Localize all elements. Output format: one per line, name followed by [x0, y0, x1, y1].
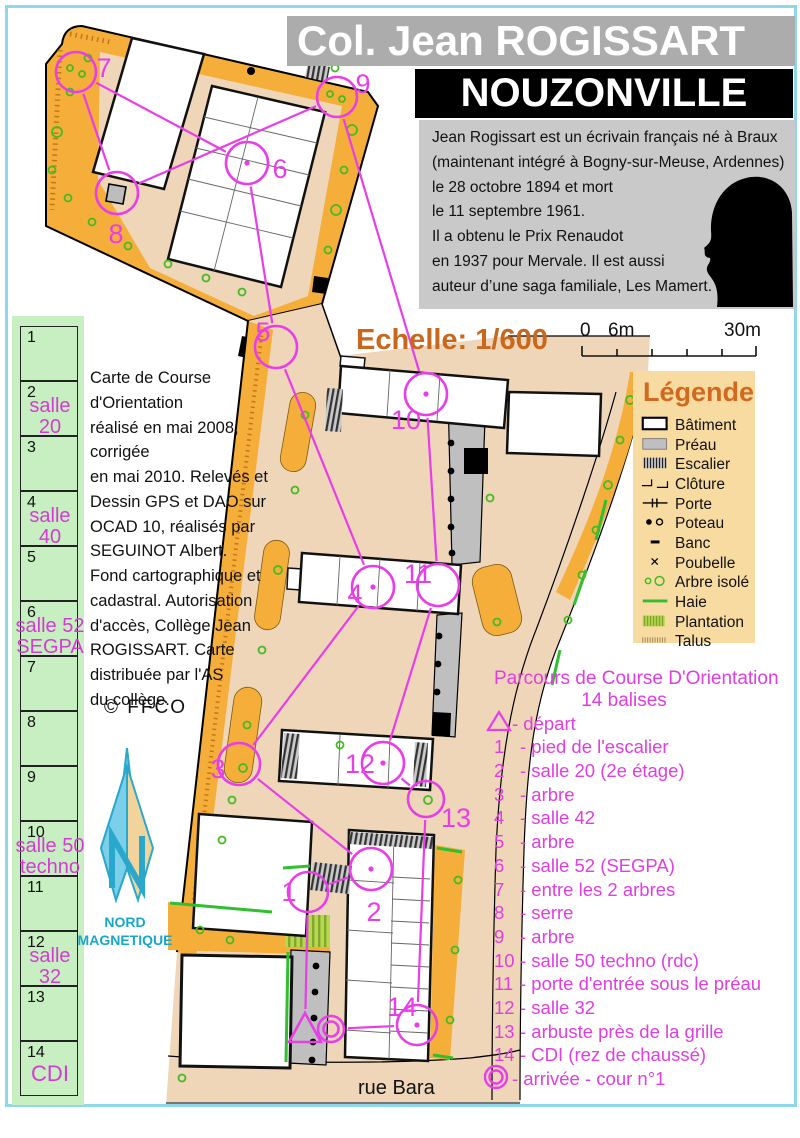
- scale-bar: 0 6m 30m: [578, 320, 762, 364]
- course-item-label: - salle 20 (2e étage): [520, 760, 685, 782]
- map-credits: Carte de Course d'Orientation réalisé en…: [90, 366, 300, 713]
- legend-item-label: Bâtiment: [675, 417, 736, 435]
- preau-icon: [641, 435, 675, 457]
- control-number-label: 5: [255, 317, 270, 347]
- legend-item: Poubelle: [641, 554, 755, 574]
- cell-number: 1: [27, 329, 36, 347]
- escalier-icon: [641, 454, 675, 476]
- haie-icon: [641, 592, 675, 614]
- control-number-label: 1: [281, 877, 296, 907]
- control-card-cell-5: 5: [20, 546, 78, 601]
- svg-text:6m: 6m: [608, 320, 634, 341]
- cell-room-label: salle 20: [7, 396, 93, 438]
- talus-icon: [641, 631, 675, 653]
- compass-north-arrow: [86, 748, 168, 910]
- legend-item-label: Plantation: [675, 614, 744, 632]
- legend-item-label: Escalier: [675, 456, 730, 474]
- porte-icon: [641, 494, 675, 516]
- start-triangle-icon: [486, 710, 512, 737]
- control-number-label: 3: [210, 754, 225, 784]
- cloture-icon: [641, 474, 675, 496]
- course-item-number: 11: [494, 973, 520, 995]
- control-card-cell-14: 14CDI: [20, 1041, 78, 1096]
- cell-room-label: salle 52 SEGPA: [7, 616, 93, 658]
- control-card-cell-4: 4salle 40: [20, 491, 78, 546]
- legend-item: Clôture: [641, 475, 755, 495]
- course-item: 2- salle 20 (2e étage): [494, 759, 796, 783]
- course-item: 13- arbuste près de la grille: [494, 1020, 796, 1044]
- plantation-icon: [641, 612, 675, 634]
- legend-item-label: Talus: [675, 633, 711, 651]
- banc-icon: [641, 533, 675, 555]
- legend-item: Haie: [641, 593, 755, 613]
- city-banner: NOUZONVILLE: [415, 69, 793, 118]
- course-item-label: - arbre: [520, 831, 575, 853]
- control-card-cell-13: 13: [20, 986, 78, 1041]
- course-item-label: - porte d'entrée sous le préau: [520, 973, 761, 995]
- serre-greenhouse: [106, 184, 126, 204]
- course-item-number: 6: [494, 855, 520, 877]
- course-item: 3- arbre: [494, 783, 796, 807]
- course-item: 6- salle 52 (SEGPA): [494, 854, 796, 878]
- course-item-label: - pied de l'escalier: [520, 736, 669, 758]
- cell-room-label: salle 40: [7, 506, 93, 548]
- course-item-number: 5: [494, 831, 520, 853]
- finish-circles-icon: [482, 1063, 512, 1096]
- course-item: 1- pied de l'escalier: [494, 736, 796, 760]
- cell-room-label: CDI: [7, 1062, 93, 1085]
- cell-number: 9: [27, 769, 36, 787]
- cell-number: 8: [27, 714, 36, 732]
- control-card-cell-1: 1: [20, 326, 78, 381]
- control-card-cell-3: 3: [20, 436, 78, 491]
- school-title-banner: Col. Jean ROGISSART: [287, 16, 795, 66]
- legend-item: Banc: [641, 534, 755, 554]
- course-item-label: - arrivée - cour n°1: [512, 1068, 665, 1090]
- legend-item: Escalier: [641, 455, 755, 475]
- course-item-label: - salle 42: [520, 807, 595, 829]
- legend-panel: Légende BâtimentPréauEscalierClôturePort…: [633, 371, 755, 643]
- course-title: Parcours de Course D'Orientation: [494, 668, 796, 690]
- poubelle-icon: [641, 553, 675, 575]
- course-item-label: - départ: [512, 713, 576, 735]
- course-item-number: 1: [494, 736, 520, 758]
- legend-title: Légende: [643, 377, 755, 408]
- course-item-label: - arbre: [520, 784, 575, 806]
- compass-label: NORD MAGNETIQUE: [62, 913, 188, 949]
- course-subtitle: 14 balises: [494, 690, 754, 712]
- control-card-cell-8: 8: [20, 711, 78, 766]
- course-item-label: - salle 52 (SEGPA): [520, 855, 675, 877]
- course-item: 4- salle 42: [494, 807, 796, 831]
- control-number-label: 7: [96, 53, 111, 83]
- street-label: rue Bara: [358, 1077, 436, 1099]
- course-item-number: 7: [494, 879, 520, 901]
- course-item: 5- arbre: [494, 830, 796, 854]
- course-item-label: - CDI (rez de chaussé): [520, 1044, 706, 1066]
- ffco-copyright: © FFCO: [104, 697, 187, 719]
- legend-item-label: Préau: [675, 437, 716, 455]
- course-item-number: 2: [494, 760, 520, 782]
- control-card-cell-2: 2salle 20: [20, 381, 78, 436]
- batiment-icon: [641, 415, 675, 437]
- legend-item-label: Poubelle: [675, 555, 735, 573]
- legend-item-label: Banc: [675, 535, 710, 553]
- control-card: 12salle 2034salle 4056salle 52 SEGPA7891…: [12, 316, 84, 1105]
- course-item-number: 10: [494, 950, 520, 972]
- control-card-cell-6: 6salle 52 SEGPA: [20, 601, 78, 656]
- course-item-number: 4: [494, 807, 520, 829]
- course-item: - départ: [494, 712, 796, 736]
- biography-box: Jean Rogissart est un écrivain français …: [419, 120, 795, 309]
- legend-item: Arbre isolé: [641, 574, 755, 594]
- course-item-number: 12: [494, 997, 520, 1019]
- control-card-cell-10: 10salle 50 techno: [20, 821, 78, 876]
- cell-number: 11: [27, 879, 44, 897]
- control-number-label: 4: [347, 579, 362, 609]
- portrait-silhouette: [681, 171, 793, 307]
- legend-item: Bâtiment: [641, 416, 755, 436]
- course-item: 12- salle 32: [494, 996, 796, 1020]
- control-card-cell-7: 7: [20, 656, 78, 711]
- control-number-label: 12: [345, 749, 375, 779]
- course-item: 11- porte d'entrée sous le préau: [494, 972, 796, 996]
- control-number-label: 14: [387, 992, 417, 1022]
- control-number-label: 10: [391, 405, 421, 435]
- control-card-cell-9: 9: [20, 766, 78, 821]
- legend-item: Poteau: [641, 514, 755, 534]
- course-item-label: - arbuste près de la grille: [520, 1021, 724, 1043]
- cell-number: 13: [27, 989, 45, 1007]
- course-item: - arrivée - cour n°1: [494, 1067, 796, 1091]
- cell-number: 14: [27, 1044, 45, 1062]
- course-item-number: 13: [494, 1021, 520, 1043]
- legend-item: Préau: [641, 436, 755, 456]
- cell-number: 7: [27, 659, 36, 677]
- cell-room-label: salle 50 techno: [7, 836, 93, 878]
- course-item-number: 3: [494, 784, 520, 806]
- legend-item-label: Poteau: [675, 515, 724, 533]
- course-item: 7- entre les 2 arbres: [494, 878, 796, 902]
- cell-number: 3: [27, 439, 36, 457]
- course-item-label: - arbre: [520, 926, 575, 948]
- legend-item: Plantation: [641, 613, 755, 633]
- cell-room-label: salle 32: [7, 946, 93, 988]
- legend-item-label: Arbre isolé: [675, 574, 749, 592]
- course-item-number: 9: [494, 926, 520, 948]
- control-number-label: 2: [366, 897, 381, 927]
- course-item: 10- salle 50 techno (rdc): [494, 949, 796, 973]
- course-item: 14- CDI (rez de chaussé): [494, 1043, 796, 1067]
- control-number-label: 13: [441, 803, 471, 833]
- control-number-label: 8: [108, 219, 123, 249]
- control-number-label: 9: [355, 69, 370, 99]
- course-list-panel: Parcours de Course D'Orientation 14 bali…: [494, 668, 796, 1091]
- course-item-label: - salle 50 techno (rdc): [520, 950, 699, 972]
- course-item-label: - serre: [520, 902, 573, 924]
- course-item-label: - entre les 2 arbres: [520, 879, 675, 901]
- poteau-icon: [641, 513, 675, 535]
- legend-item-label: Porte: [675, 496, 712, 514]
- legend-item-label: Haie: [675, 594, 707, 612]
- course-item: 9- arbre: [494, 925, 796, 949]
- legend-item: Talus: [641, 633, 755, 653]
- legend-item: Porte: [641, 495, 755, 515]
- course-item: 8- serre: [494, 901, 796, 925]
- svg-text:30m: 30m: [724, 320, 761, 341]
- control-number-label: 6: [272, 154, 287, 184]
- course-item-number: 8: [494, 902, 520, 924]
- control-number-label: 11: [404, 559, 432, 589]
- legend-item-label: Clôture: [675, 476, 725, 494]
- cell-number: 5: [27, 549, 36, 567]
- arbre-icon: [641, 572, 675, 594]
- map-scale-label: Echelle: 1/600: [356, 324, 548, 357]
- svg-text:0: 0: [580, 320, 591, 341]
- course-item-label: - salle 32: [520, 997, 595, 1019]
